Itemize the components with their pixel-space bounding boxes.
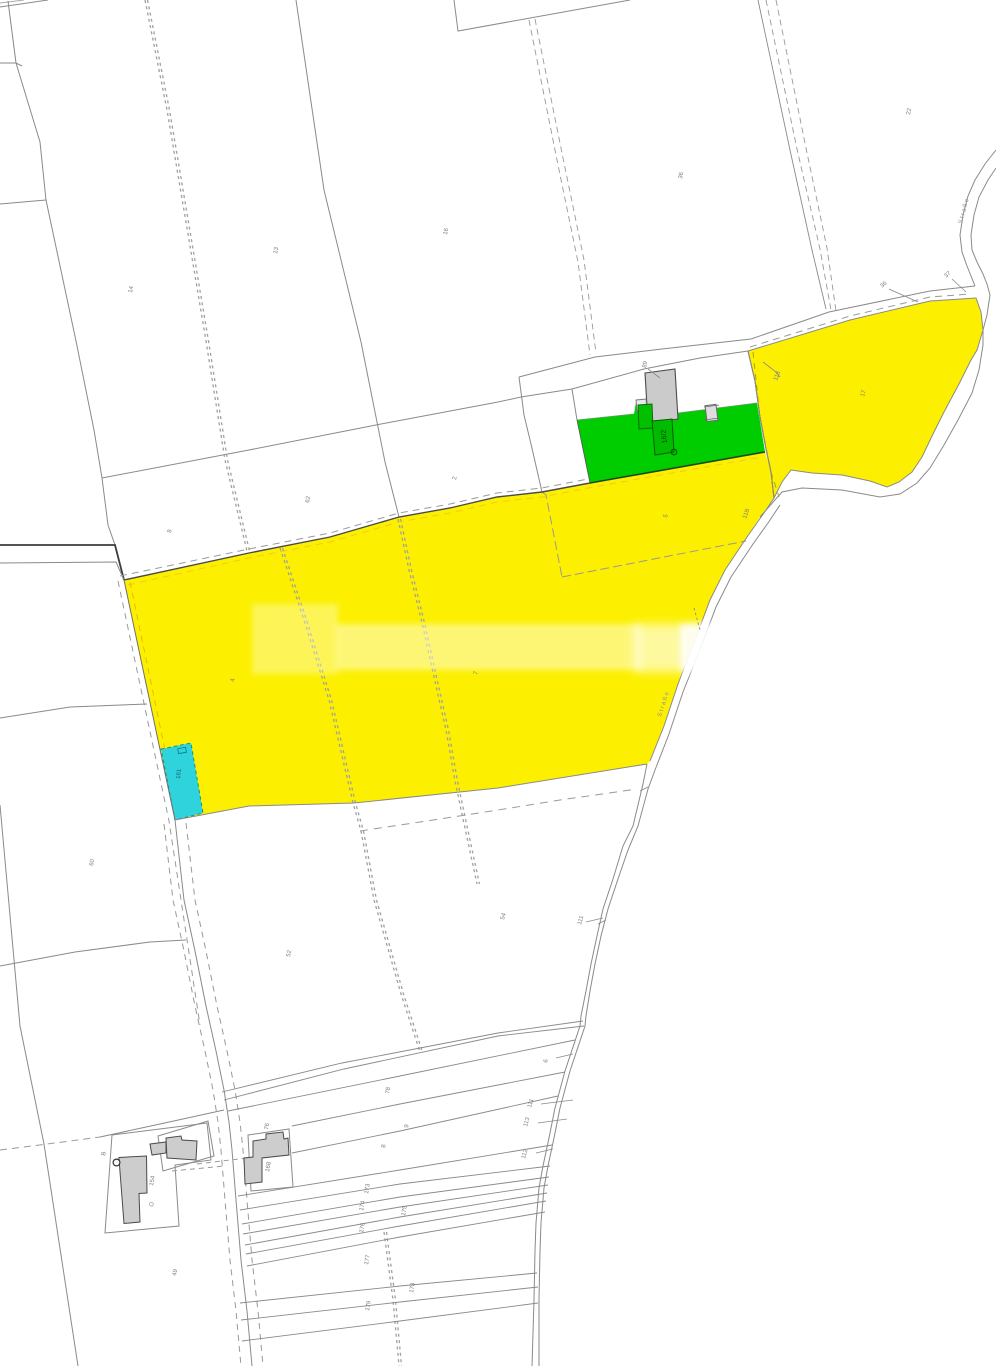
svg-text:161: 161 [176,768,183,779]
